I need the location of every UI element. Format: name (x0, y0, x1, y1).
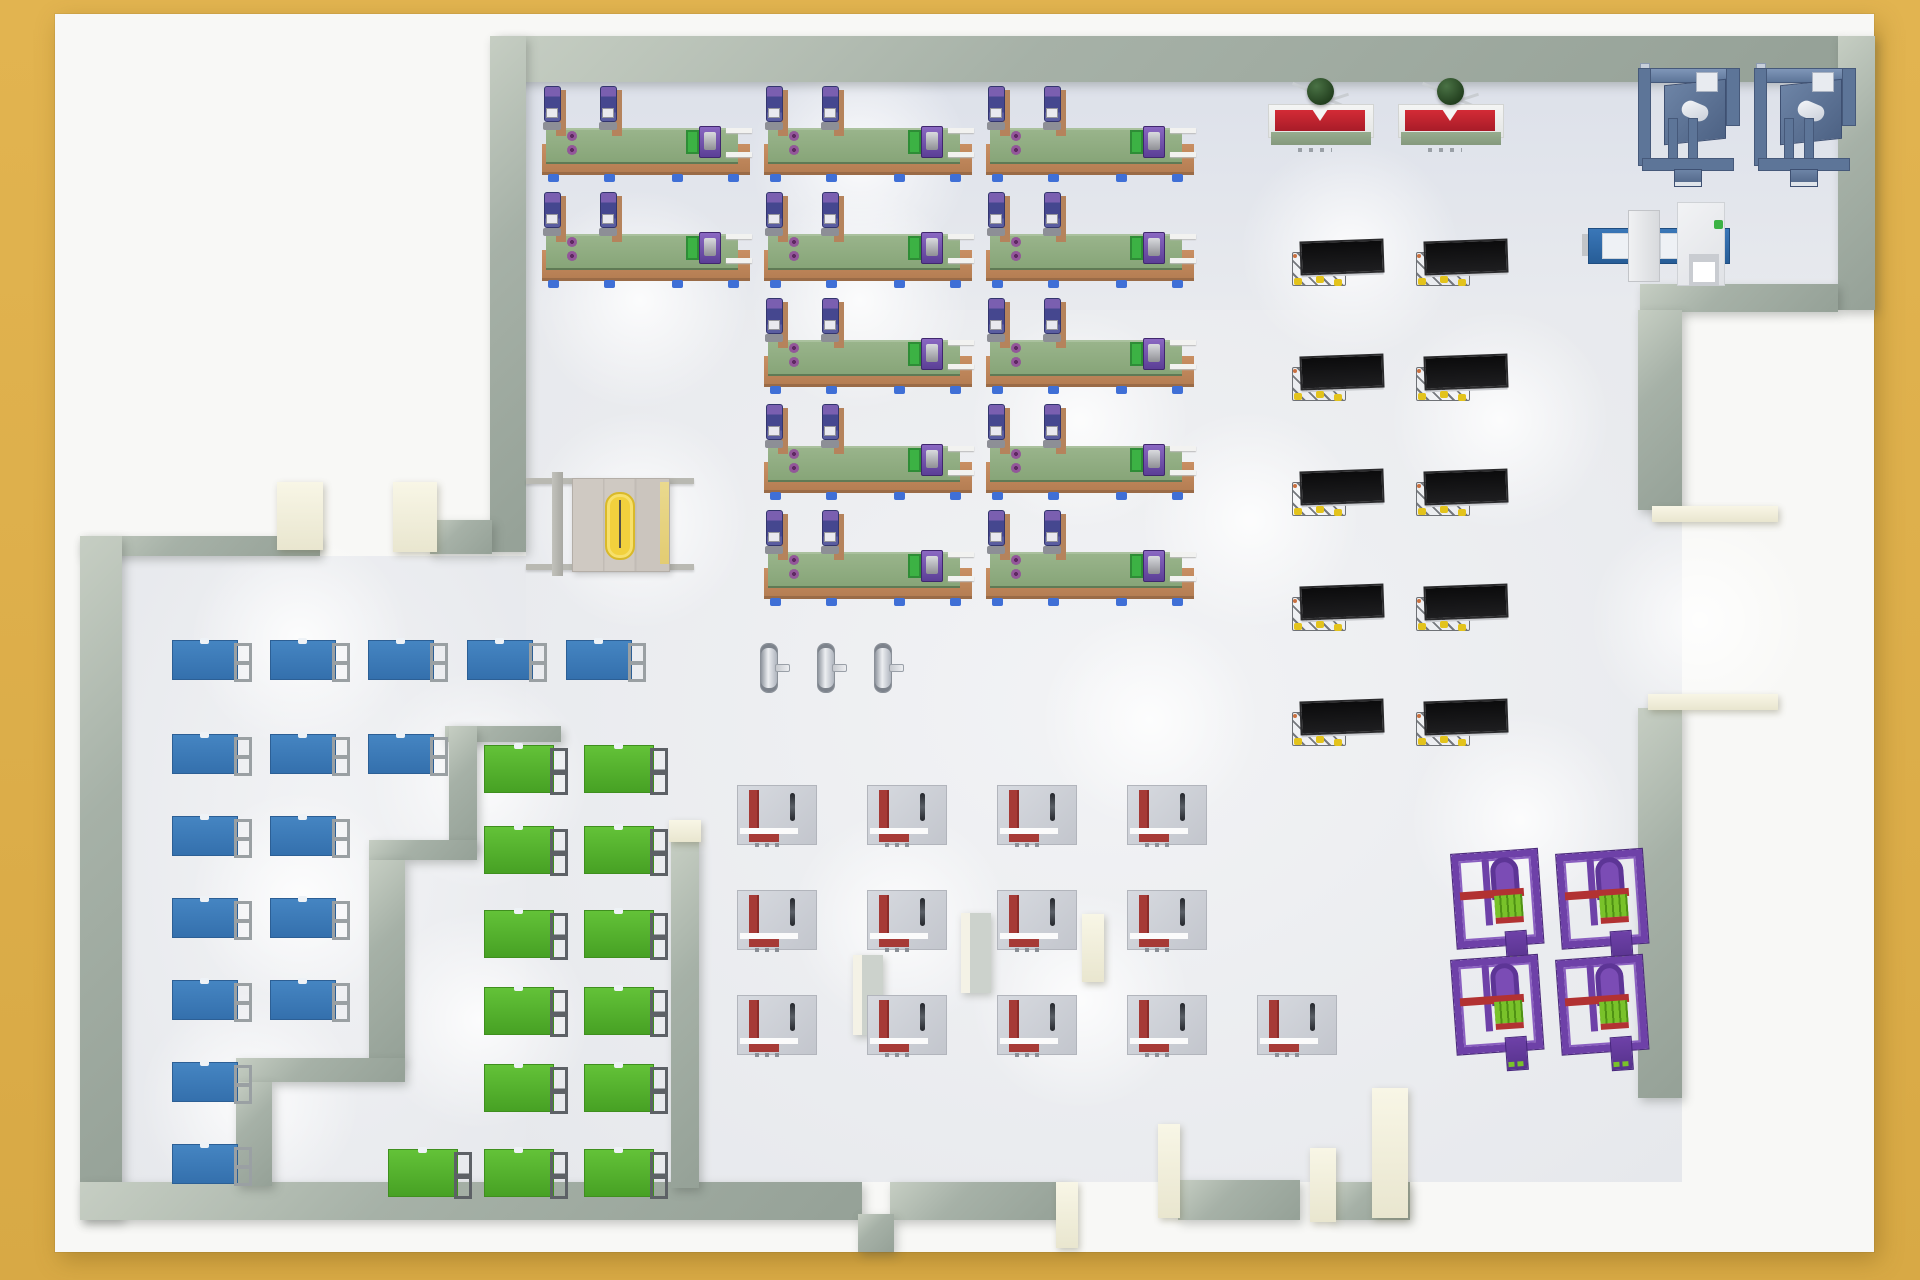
status-light-green (1714, 220, 1723, 229)
material-spool (789, 237, 799, 247)
robot-base-pad (821, 546, 839, 554)
robot-head (990, 108, 1002, 118)
green-workbench (484, 826, 564, 874)
desk-frame (234, 643, 252, 682)
gripper-green (1130, 342, 1143, 366)
moving-gantry (1628, 210, 1660, 282)
material-spool (1011, 145, 1021, 155)
robot-base-pad (1043, 228, 1061, 236)
leveling-foot-yellow (1294, 278, 1302, 285)
conveyor-foot (826, 174, 837, 182)
desk-clamp (514, 743, 523, 749)
robot-base-pad (1043, 122, 1061, 130)
desk-frame (650, 1152, 668, 1199)
assembly-robot (820, 402, 844, 458)
desk-frame (430, 737, 448, 776)
inspection-bench (737, 995, 817, 1057)
mounted-part (920, 898, 925, 926)
valve-arm (889, 664, 904, 672)
material-spool (789, 357, 799, 367)
end-of-line-station (1130, 230, 1170, 266)
assembly-conveyor-line (984, 400, 1196, 504)
conveyor-foot (894, 598, 905, 606)
gripper-green (908, 130, 921, 154)
leveling-foot-yellow (1418, 278, 1426, 285)
robot-base-pad (821, 228, 839, 236)
gripper-green (686, 236, 699, 260)
desk-clamp (200, 732, 209, 738)
conveyor-foot (894, 492, 905, 500)
desk-top (270, 816, 336, 856)
assembly-conveyor-line (540, 188, 752, 292)
debris (885, 1053, 911, 1057)
black-panel (1299, 354, 1384, 391)
assembly-robot (1042, 402, 1066, 458)
control-monitor-station (1292, 470, 1382, 518)
outfeed-rail (948, 576, 974, 581)
assembly-robot (986, 296, 1010, 352)
factory-floor-plan (0, 0, 1920, 1280)
mounted-part (1180, 1003, 1185, 1031)
conveyor-foot (1172, 174, 1183, 182)
conveyor-foot (950, 492, 961, 500)
blue-workbench (368, 734, 446, 774)
desk-frame (234, 819, 252, 858)
desk-top (270, 640, 336, 680)
desk-clamp (594, 638, 603, 644)
blue-workbench (172, 734, 250, 774)
blue-workbench (172, 1144, 250, 1184)
desk-clamp (200, 896, 209, 902)
desk-clamp (418, 1147, 427, 1153)
robot-head (1046, 426, 1058, 436)
outfeed-rail (1170, 552, 1196, 557)
left-rail (1638, 68, 1651, 166)
control-monitor-station (1292, 240, 1382, 288)
bench-front-rail (740, 828, 798, 834)
desk-clamp (200, 978, 209, 984)
robot-head (602, 214, 614, 224)
robot-head (768, 320, 780, 330)
inspection-bench (867, 890, 947, 952)
fixture-red-foot (1269, 1043, 1299, 1052)
press-head (1148, 344, 1160, 362)
bench-front-rail (1130, 828, 1188, 834)
outfeed-rail (948, 128, 974, 133)
leveling-foot-yellow (1440, 391, 1448, 398)
robot-base-pad (765, 122, 783, 130)
gas-cylinder (817, 643, 835, 693)
desk-top (368, 640, 434, 680)
conveyor-foot (894, 174, 905, 182)
desk-frame (234, 983, 252, 1022)
leveling-foot-yellow (1334, 624, 1342, 631)
press-head (926, 450, 938, 468)
robot-head (990, 532, 1002, 542)
robot-head (546, 214, 558, 224)
leveling-foot-yellow (1334, 279, 1342, 286)
fixture-red-foot (1139, 1043, 1169, 1052)
purple-machining-cell (1556, 849, 1642, 968)
robot-base-pad (987, 122, 1005, 130)
desk-clamp (298, 814, 307, 820)
assembly-robot (764, 508, 788, 564)
leveling-foot-yellow (1294, 393, 1302, 400)
green-workbench (484, 1149, 564, 1197)
leveling-foot-yellow (1458, 624, 1466, 631)
material-spool (1011, 343, 1021, 353)
desk-frame (650, 829, 668, 876)
bench-front-rail (1000, 933, 1058, 939)
desk-top (368, 734, 434, 774)
blue-workbench (172, 640, 250, 680)
wall-segment (490, 36, 526, 552)
desk-frame (234, 737, 252, 776)
assembly-robot (598, 190, 622, 246)
control-monitor-station (1292, 355, 1382, 403)
assembly-robot (820, 190, 844, 246)
robot-head (768, 532, 780, 542)
conveyor-foot (992, 598, 1003, 606)
portal-post (552, 472, 563, 576)
robot-base-pad (543, 122, 561, 130)
indicator-dot (1293, 714, 1297, 718)
bench-front-rail (1130, 933, 1188, 939)
green-workbench (388, 1149, 468, 1197)
leveling-foot-yellow (1294, 623, 1302, 630)
press-head (926, 556, 938, 574)
desk-top (467, 640, 533, 680)
material-spool (789, 343, 799, 353)
conveyor-foot (770, 598, 781, 606)
debris (885, 948, 911, 952)
robot-base-pad (987, 334, 1005, 342)
control-monitor-station (1416, 470, 1506, 518)
desk-top (484, 910, 554, 958)
robot-base-pad (765, 228, 783, 236)
material-spool (1011, 569, 1021, 579)
leveling-foot-yellow (1334, 509, 1342, 516)
yellow-capsule-window (605, 492, 635, 560)
desk-top (172, 1144, 238, 1184)
conveyor-foot (728, 174, 739, 182)
leveling-foot-yellow (1316, 621, 1324, 628)
wall-segment (1640, 284, 1838, 312)
outfeed-rail (948, 152, 974, 157)
desk-top (270, 980, 336, 1020)
conveyor-foot (1116, 280, 1127, 288)
desk-frame (234, 901, 252, 940)
indicator-dot (1417, 254, 1421, 258)
gripper-green (908, 554, 921, 578)
conveyor-foot (728, 280, 739, 288)
press-head (1148, 556, 1160, 574)
indicator-dot (1293, 484, 1297, 488)
black-panel (1299, 584, 1384, 621)
fixture-red-foot (1009, 938, 1039, 947)
lower-shelf (1401, 132, 1501, 145)
desk-clamp (614, 985, 623, 991)
conveyor-foot (1116, 492, 1127, 500)
leveling-foot-yellow (1316, 276, 1324, 283)
valve-arm (832, 664, 847, 672)
fixture-red-foot (749, 1043, 779, 1052)
wall-segment (1638, 310, 1682, 510)
control-box (1696, 72, 1718, 92)
robot-head (1046, 108, 1058, 118)
assembly-conveyor-line (762, 82, 974, 186)
assembly-robot (764, 190, 788, 246)
debris (1145, 948, 1171, 952)
gripper-green (686, 130, 699, 154)
material-spool (1011, 463, 1021, 473)
material-spool (789, 569, 799, 579)
assembly-robot (1042, 84, 1066, 140)
assembly-robot (986, 84, 1010, 140)
black-panel (1423, 584, 1508, 621)
control-monitor-station (1416, 700, 1506, 748)
indicator-dot (1293, 599, 1297, 603)
gripper-green (908, 342, 921, 366)
press-head (926, 132, 938, 150)
fasteners (1428, 148, 1462, 152)
conveyor-foot (992, 386, 1003, 394)
bench-front-rail (870, 1038, 928, 1044)
robot-head (602, 108, 614, 118)
status-dot (1508, 1062, 1514, 1067)
conveyor-foot (894, 280, 905, 288)
fixture-red-foot (879, 833, 909, 842)
safety-portal (526, 470, 698, 580)
desk-frame (650, 1067, 668, 1114)
leveling-foot-yellow (1316, 736, 1324, 743)
material-spool (789, 131, 799, 141)
end-of-line-station (908, 548, 948, 584)
bench-front-rail (740, 1038, 798, 1044)
gripper-green (1130, 130, 1143, 154)
wall-stub (961, 913, 991, 993)
mounted-part (1050, 793, 1055, 821)
robot-head (1046, 214, 1058, 224)
robot-head (824, 532, 836, 542)
end-of-line-station (908, 124, 948, 160)
desk-top (172, 816, 238, 856)
conveyor-foot (770, 492, 781, 500)
inspection-bench (1127, 785, 1207, 847)
wall-segment (449, 726, 477, 850)
assembly-conveyor-line (984, 506, 1196, 610)
desk-top (584, 745, 654, 793)
inspection-bench (1127, 890, 1207, 952)
assembly-conveyor-line (762, 188, 974, 292)
assembly-conveyor-line (984, 188, 1196, 292)
green-workbench (584, 1064, 664, 1112)
desk-top (584, 1149, 654, 1197)
inspection-bench (867, 995, 947, 1057)
blue-workbench (566, 640, 644, 680)
debris (1145, 843, 1171, 847)
end-of-line-station (1130, 124, 1170, 160)
conveyor-foot (1172, 492, 1183, 500)
assembly-conveyor-line (762, 506, 974, 610)
conveyor-foot (1048, 280, 1059, 288)
desk-frame (332, 819, 350, 858)
conveyor-foot (950, 174, 961, 182)
green-fixture (1494, 1000, 1523, 1024)
assembly-robot (542, 190, 566, 246)
robot-head (990, 426, 1002, 436)
material-spool (567, 131, 577, 141)
end-of-line-station (1130, 548, 1170, 584)
fixture-red-foot (749, 833, 779, 842)
wall-segment (369, 860, 405, 1062)
assembly-conveyor-line (984, 82, 1196, 186)
fixture-red-foot (879, 938, 909, 947)
blue-workbench (172, 980, 250, 1020)
valve-arm (775, 664, 790, 672)
robot-base-pad (765, 334, 783, 342)
conveyor-foot (950, 598, 961, 606)
assembly-conveyor-line (762, 294, 974, 398)
outfeed-rail (1170, 152, 1196, 157)
debris (885, 843, 911, 847)
mounted-part (920, 793, 925, 821)
mounted-part (790, 1003, 795, 1031)
material-spool (1011, 131, 1021, 141)
conveyor-foot (1116, 174, 1127, 182)
gripper-green (908, 448, 921, 472)
desk-clamp (614, 824, 623, 830)
end-of-line-station (1130, 442, 1170, 478)
blue-workbench (270, 734, 348, 774)
wall-segment (430, 520, 492, 554)
leveling-foot-yellow (1418, 623, 1426, 630)
robot-head (990, 320, 1002, 330)
conveyor-foot (894, 386, 905, 394)
assembly-robot (1042, 190, 1066, 246)
inspection-bench (1127, 995, 1207, 1057)
robot-head (824, 320, 836, 330)
indicator-dot (1417, 599, 1421, 603)
desk-top (388, 1149, 458, 1197)
desk-clamp (298, 896, 307, 902)
outfeed-rail (948, 364, 974, 369)
steel-gantry-frame (1638, 52, 1738, 192)
desk-frame (628, 643, 646, 682)
conveyor-foot (770, 386, 781, 394)
control-monitor-station (1416, 355, 1506, 403)
debris (755, 1053, 781, 1057)
wall-segment (671, 840, 699, 1188)
conveyor-foot (1048, 386, 1059, 394)
desk-clamp (298, 638, 307, 644)
debris (1015, 843, 1041, 847)
material-spool (1011, 357, 1021, 367)
desk-clamp (298, 978, 307, 984)
desk-clamp (614, 1062, 623, 1068)
outfeed-rail (948, 446, 974, 451)
black-panel (1299, 469, 1384, 506)
desk-clamp (200, 814, 209, 820)
green-workbench (484, 1064, 564, 1112)
conveyor-foot (770, 174, 781, 182)
left-rail (1754, 68, 1767, 166)
desk-frame (550, 1152, 568, 1199)
cream-pillar (1082, 914, 1104, 982)
mounted-part (920, 1003, 925, 1031)
desk-top (270, 734, 336, 774)
status-dot (1622, 1061, 1628, 1066)
housing-notch (1689, 254, 1719, 286)
press-head (704, 132, 716, 150)
leveling-foot-yellow (1440, 506, 1448, 513)
robot-head (768, 108, 780, 118)
desk-frame (550, 913, 568, 960)
robot-base-pad (821, 440, 839, 448)
wall-segment (80, 536, 122, 1220)
material-spool (1011, 449, 1021, 459)
conveyor-foot (770, 280, 781, 288)
desk-clamp (495, 638, 504, 644)
green-workbench (484, 910, 564, 958)
desk-clamp (200, 1142, 209, 1148)
outfeed-rail (1170, 340, 1196, 345)
cream-pillar (1310, 1148, 1336, 1222)
blue-workbench (467, 640, 545, 680)
machine-foot (1790, 169, 1818, 187)
desk-clamp (396, 732, 405, 738)
desk-clamp (514, 1147, 523, 1153)
desk-frame (332, 901, 350, 940)
conveyor-foot (826, 386, 837, 394)
conveyor-foot (826, 280, 837, 288)
assembly-robot (764, 296, 788, 352)
desk-top (584, 826, 654, 874)
robot-head (1046, 320, 1058, 330)
desk-clamp (514, 1062, 523, 1068)
outfeed-rail (726, 234, 752, 239)
assembly-robot (820, 296, 844, 352)
gripper-green (1130, 236, 1143, 260)
desk-frame (332, 643, 350, 682)
assembly-robot (820, 508, 844, 564)
robot-base-pad (599, 122, 617, 130)
black-panel (1299, 239, 1384, 276)
desk-frame (550, 748, 568, 795)
green-fixture (1599, 1000, 1628, 1024)
machine-foot (1674, 169, 1702, 187)
inspection-bench (737, 785, 817, 847)
assembly-robot (820, 84, 844, 140)
desk-top (172, 898, 238, 938)
mounted-part (790, 898, 795, 926)
conveyor-foot (1048, 174, 1059, 182)
blue-workbench (172, 1062, 250, 1102)
right-column (1726, 68, 1740, 126)
press-head (1148, 238, 1160, 256)
conveyor-foot (1172, 280, 1183, 288)
desk-top (584, 987, 654, 1035)
conveyor-foot (604, 280, 615, 288)
outfeed-rail (1170, 258, 1196, 263)
desk-top (584, 1064, 654, 1112)
desk-frame (550, 829, 568, 876)
conveyor-foot (548, 280, 559, 288)
material-spool (1011, 555, 1021, 565)
indicator-dot (1417, 369, 1421, 373)
desk-frame (454, 1152, 472, 1199)
assembly-robot (1042, 296, 1066, 352)
